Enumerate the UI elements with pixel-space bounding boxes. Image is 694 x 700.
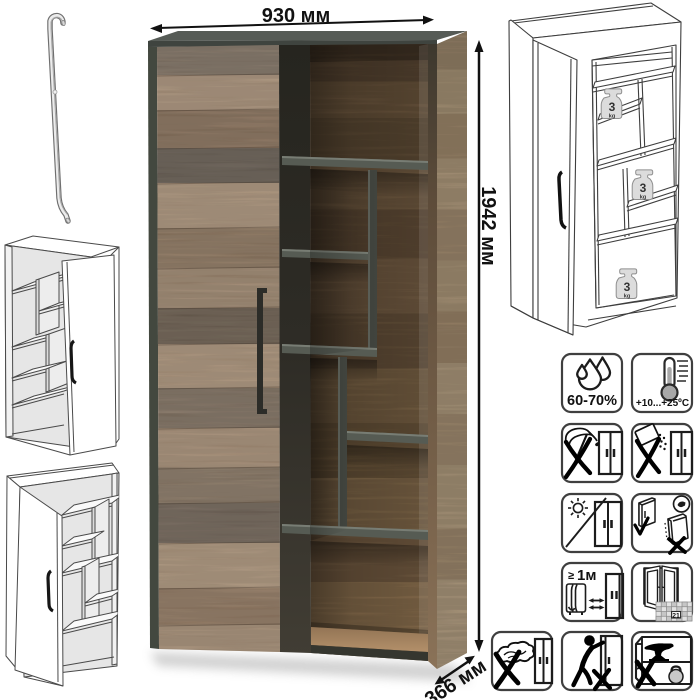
svg-text:kg: kg: [640, 195, 646, 201]
svg-text:+10...+25ºC: +10...+25ºC: [636, 398, 689, 409]
svg-text:1942 мм: 1942 мм: [477, 186, 499, 266]
svg-text:kg: kg: [624, 294, 630, 300]
svg-text:21: 21: [672, 612, 680, 619]
svg-text:1м: 1м: [577, 567, 596, 584]
svg-text:≥: ≥: [568, 570, 574, 582]
svg-text:3: 3: [624, 280, 631, 294]
svg-text:kg: kg: [609, 114, 615, 120]
svg-text:3: 3: [609, 100, 616, 114]
svg-text:60-70%: 60-70%: [567, 393, 617, 409]
svg-text:3: 3: [640, 181, 647, 195]
svg-text:930 мм: 930 мм: [262, 5, 331, 27]
